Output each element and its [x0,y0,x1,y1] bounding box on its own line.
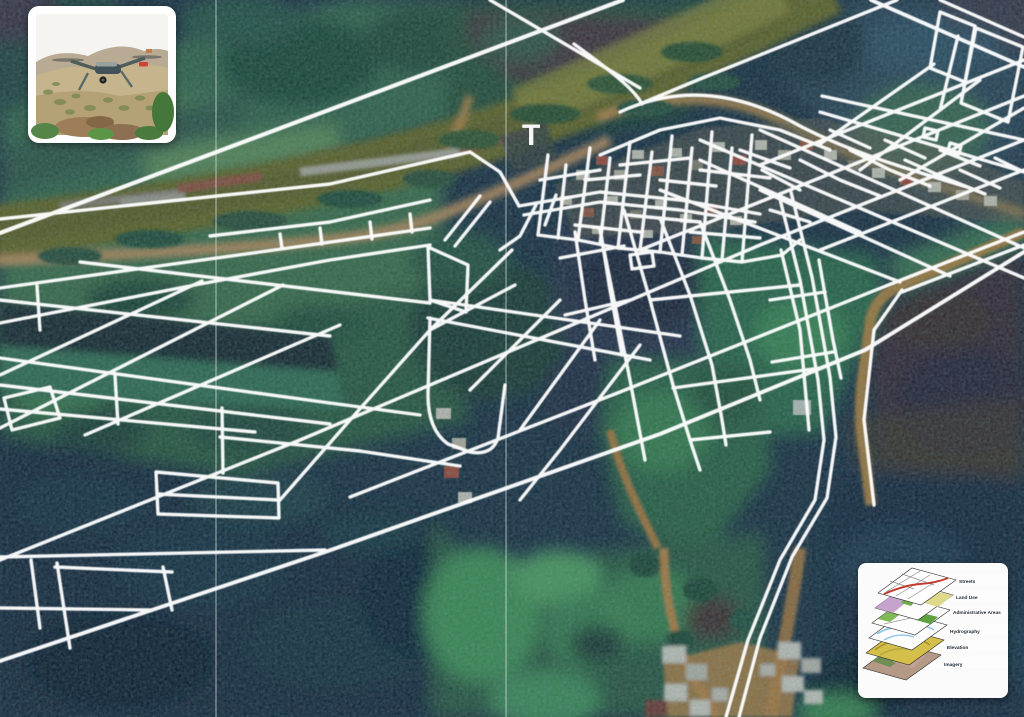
svg-text:Land Use: Land Use [956,595,978,601]
svg-text:T: T [522,119,540,152]
svg-text:Administrative Areas: Administrative Areas [953,610,1001,616]
svg-text:Hydrography: Hydrography [950,629,980,635]
svg-text:Elevation: Elevation [947,645,968,651]
svg-text:Imagery: Imagery [944,662,963,668]
svg-text:Streets: Streets [959,579,976,585]
